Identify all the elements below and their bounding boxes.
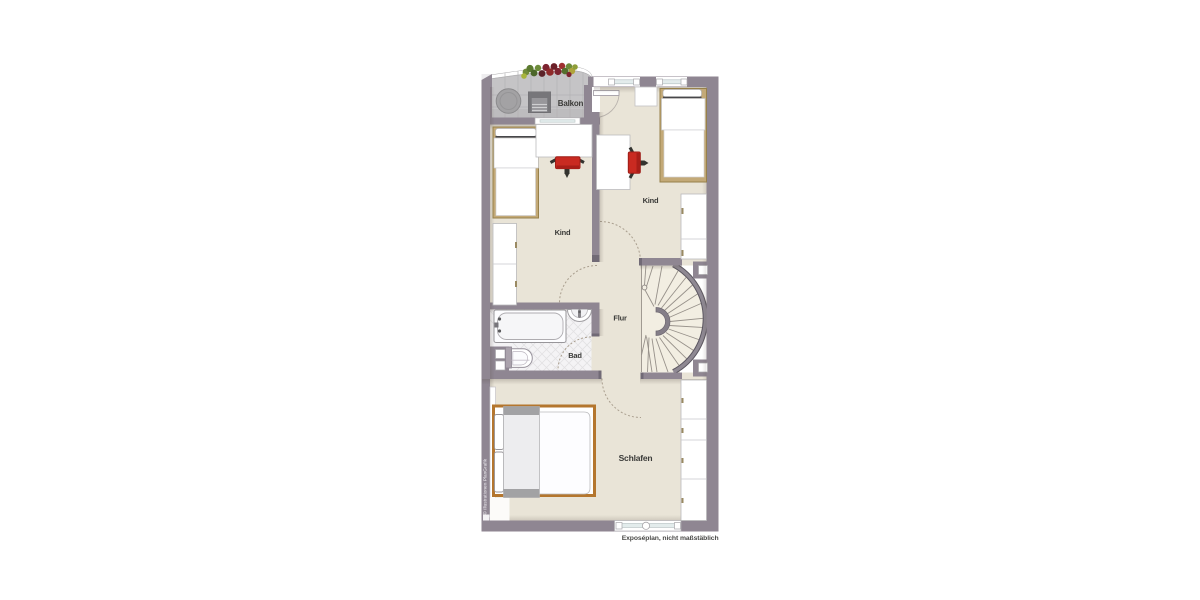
svg-text:Kind: Kind — [643, 196, 659, 205]
svg-text:Balkon: Balkon — [558, 99, 584, 108]
svg-text:Flur: Flur — [613, 314, 627, 323]
svg-text:Kind: Kind — [555, 228, 571, 237]
svg-text:Schlafen: Schlafen — [619, 453, 653, 463]
svg-text:Exposéplan, nicht maßstäblich: Exposéplan, nicht maßstäblich — [622, 535, 719, 542]
svg-text:Bad: Bad — [568, 351, 582, 360]
svg-text:© Illustrationen PlanGrafik: © Illustrationen PlanGrafik — [482, 458, 489, 514]
